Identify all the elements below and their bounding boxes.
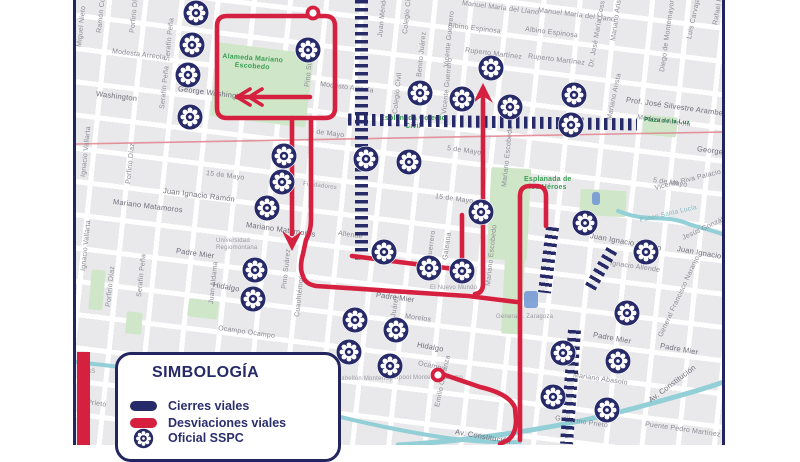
legend-item-label: Oficial SSPC bbox=[168, 431, 244, 445]
police-officer-badge-icon bbox=[449, 258, 476, 285]
detours-swatch bbox=[130, 418, 157, 428]
park-area bbox=[501, 258, 525, 335]
street-label: Mariano Arista bbox=[606, 73, 624, 121]
officer-badge-icon bbox=[177, 104, 204, 131]
road-closure-infographic: { "colors": { "navy": "#272a68", "red": … bbox=[0, 0, 800, 445]
police-officer-badge-icon bbox=[295, 37, 322, 64]
officer-badge-icon bbox=[396, 149, 423, 176]
area-label: Esplanada de los Héroes bbox=[524, 176, 572, 192]
officer-badge-icon bbox=[383, 317, 410, 344]
street-label: Ramón Corona bbox=[96, 0, 109, 33]
street-label: Galeana bbox=[442, 232, 454, 261]
street-label: Albino Espinosa bbox=[448, 22, 502, 36]
street-label: Porfirio Díaz bbox=[129, 0, 141, 33]
officer-badge-icon bbox=[371, 239, 398, 266]
officer-badge-icon bbox=[407, 80, 434, 107]
road-closure-hatch bbox=[538, 226, 559, 293]
street-label: Benito Juárez bbox=[416, 31, 429, 77]
police-officer-badge-icon bbox=[377, 353, 404, 380]
red-accent-bar bbox=[77, 352, 90, 445]
street-label: Washington bbox=[95, 90, 137, 104]
street-label: Ignacio Vallarta bbox=[80, 126, 93, 177]
street-label: Av. Constitución bbox=[647, 364, 697, 405]
street-label: Serafín Peña bbox=[136, 254, 149, 298]
legend-item-label: Desviaciones viales bbox=[168, 416, 286, 430]
street-label: Universidad Regiomontana bbox=[216, 238, 257, 252]
police-officer-badge-icon bbox=[605, 348, 632, 375]
police-officer-badge-icon bbox=[175, 62, 202, 89]
officer-badge-icon bbox=[271, 143, 298, 170]
park-area bbox=[125, 311, 143, 334]
police-officer-badge-icon bbox=[383, 317, 410, 344]
police-officer-badge-icon bbox=[242, 257, 269, 284]
street-label: Ruperto Martínez bbox=[528, 53, 586, 68]
officer-badge-icon bbox=[377, 353, 404, 380]
legend-title: SIMBOLOGÍA bbox=[152, 364, 259, 382]
officer-badge-icon bbox=[254, 195, 281, 222]
police-officer-badge-icon bbox=[540, 384, 567, 411]
police-officer-badge-icon bbox=[353, 146, 380, 173]
officer-badge-icon bbox=[416, 255, 443, 282]
police-officer-badge-icon bbox=[269, 169, 296, 196]
police-officer-badge-icon bbox=[342, 307, 369, 334]
police-officer-badge-icon bbox=[633, 239, 660, 266]
street-label: Miguel Nieto bbox=[76, 6, 88, 48]
police-officer-badge-icon bbox=[449, 86, 476, 113]
street-label: Mariano Matamoros bbox=[112, 198, 183, 215]
officer-badge-icon bbox=[449, 258, 476, 285]
officer-badge-icon bbox=[179, 32, 206, 59]
street-label: Dr. José María Coss bbox=[588, 0, 608, 68]
officer-badge-icon bbox=[633, 239, 660, 266]
police-officer-badge-icon bbox=[177, 104, 204, 131]
officer-badge-icon bbox=[342, 307, 369, 334]
street-label: Pino Suárez bbox=[281, 248, 293, 289]
officer-badge-icon bbox=[605, 348, 632, 375]
street-label: Serafín Peña bbox=[159, 66, 172, 110]
road-closure-hatch bbox=[355, 0, 368, 262]
police-officer-badge-icon bbox=[468, 199, 495, 226]
street-label: Rafael Platón Sánchez bbox=[712, 0, 722, 26]
officer-badge-icon bbox=[614, 300, 641, 327]
police-officer-badge-icon bbox=[614, 300, 641, 327]
street-label: Ignacio Vallarta bbox=[80, 220, 93, 271]
park-area bbox=[88, 269, 105, 310]
police-officer-badge-icon bbox=[416, 255, 443, 282]
street-label: El Nuevo Mundo bbox=[430, 285, 477, 292]
police-officer-badge-icon bbox=[497, 94, 524, 121]
officer-badge-icon bbox=[550, 340, 577, 367]
street-label: Cuauhtémoc bbox=[294, 275, 306, 317]
officer-badge-icon bbox=[295, 37, 322, 64]
police-officer-badge-icon bbox=[254, 195, 281, 222]
street-label: 5 de Mayo bbox=[446, 145, 481, 158]
officer-badge-icon bbox=[242, 257, 269, 284]
street-label: Puente Pedro Martínez bbox=[644, 421, 721, 440]
police-officer-badge-icon bbox=[183, 0, 210, 27]
officer-badge-icon bbox=[497, 94, 524, 121]
street-label: Albino Espinosa bbox=[525, 26, 579, 40]
police-officer-badge-icon bbox=[407, 80, 434, 107]
street-label: Av. Constitución bbox=[454, 428, 511, 445]
legend-item-road-closures: Cierres viales bbox=[130, 399, 249, 413]
officer-badge-icon bbox=[540, 384, 567, 411]
street-label: Luis Carvajal bbox=[686, 0, 703, 40]
map-frame-left-border bbox=[73, 0, 76, 445]
officer-badge-icon bbox=[594, 397, 621, 424]
legend-item-officer: Oficial SSPC bbox=[130, 431, 244, 445]
street-label: Jesús González bbox=[681, 213, 722, 243]
officer-badge-icon bbox=[133, 428, 154, 449]
police-officer-badge-icon bbox=[572, 210, 599, 237]
street-label: Porfirio Díaz bbox=[125, 143, 137, 185]
street-label: Padre Mier bbox=[592, 331, 632, 346]
street-label: George bbox=[696, 145, 722, 157]
map-frame-right-border bbox=[722, 0, 725, 445]
officer-badge-icon bbox=[468, 199, 495, 226]
street-label: General I. Zaragoza bbox=[496, 314, 553, 321]
street-label: Modesta Arreola bbox=[112, 48, 167, 63]
police-officer-badge-icon bbox=[371, 239, 398, 266]
road-closure-hatch bbox=[585, 247, 617, 291]
police-officer-badge-icon bbox=[240, 286, 267, 313]
street-label: General Francisco Naranjo bbox=[657, 255, 702, 339]
officer-badge-icon bbox=[558, 112, 585, 139]
officer-badge-icon bbox=[478, 55, 505, 82]
street-label: Mariano Matamoros bbox=[245, 221, 316, 239]
street-label: Colegio Civil bbox=[402, 0, 414, 34]
street-label: Colegio Civil bbox=[392, 72, 404, 114]
officer-badge-icon bbox=[353, 146, 380, 173]
police-officer-badge-icon bbox=[550, 340, 577, 367]
officer-badge-icon bbox=[183, 0, 210, 27]
street-label: Manuel María del Llano bbox=[462, 0, 540, 17]
street-label: Hidalgo bbox=[416, 341, 444, 354]
street-label: Fundadores bbox=[303, 181, 338, 192]
police-officer-badge-icon bbox=[271, 143, 298, 170]
officer-badge-icon bbox=[572, 210, 599, 237]
street-label: Paseo Santa Lucía bbox=[639, 204, 698, 224]
police-officer-badge-icon bbox=[561, 82, 588, 109]
police-officer-badge-icon bbox=[558, 112, 585, 139]
police-officer-badge-icon bbox=[179, 32, 206, 59]
officer-badge-icon bbox=[561, 82, 588, 109]
map-legend: SIMBOLOGÍA Cierres viales Desviaciones v… bbox=[115, 352, 341, 462]
police-officer-badge-icon bbox=[396, 149, 423, 176]
closures-swatch bbox=[130, 401, 157, 411]
officer-badge-icon bbox=[175, 62, 202, 89]
police-officer-badge-icon bbox=[594, 397, 621, 424]
street-label: Padre Mier bbox=[175, 247, 215, 261]
street-label: Juan Méndez bbox=[377, 0, 390, 37]
metro-line bbox=[76, 132, 722, 144]
officer-badge-icon bbox=[269, 169, 296, 196]
building-footprint bbox=[592, 192, 600, 205]
street-label: Ocampo bbox=[417, 360, 446, 374]
street-label: Padre Mier bbox=[659, 342, 699, 357]
police-officer-badge-icon bbox=[478, 55, 505, 82]
officer-badge-icon bbox=[240, 286, 267, 313]
street-label: Ocampo Ocampo bbox=[217, 325, 275, 341]
legend-item-label: Cierres viales bbox=[168, 399, 249, 413]
detour-direction-arrowhead bbox=[473, 83, 493, 103]
street-label: Porfirio Díaz bbox=[105, 266, 117, 308]
street-label: Diego de Montemayor bbox=[659, 0, 677, 73]
street-label: Juan Ignacio Ramón bbox=[162, 187, 235, 204]
building-footprint bbox=[524, 291, 538, 308]
route-endpoint-node bbox=[308, 8, 319, 19]
officer-badge-icon bbox=[449, 86, 476, 113]
street-label: 15 de Mayo bbox=[206, 170, 245, 183]
street-label: 5 de Mayo bbox=[310, 128, 345, 140]
